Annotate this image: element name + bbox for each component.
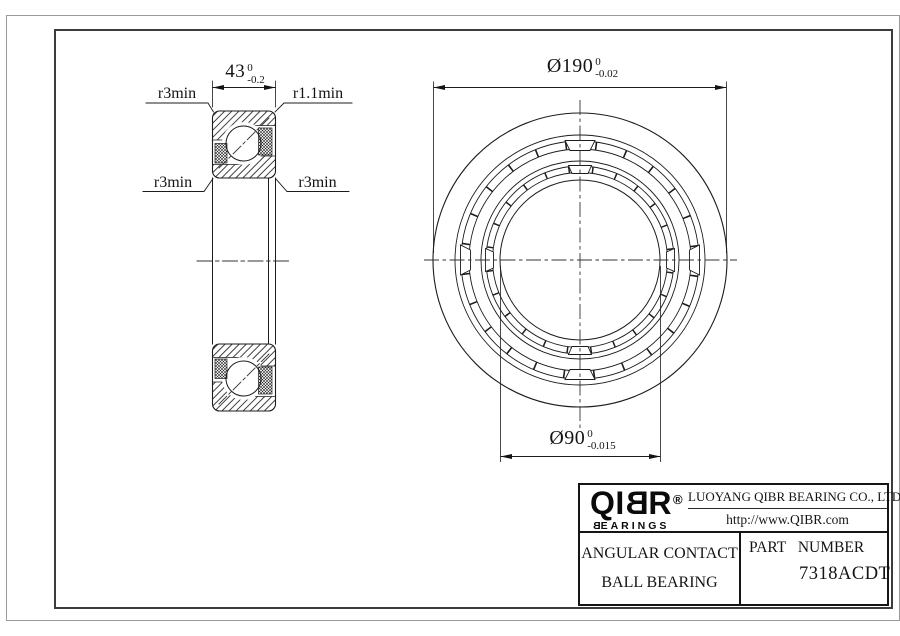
company-website: http://www.QIBR.com (688, 509, 887, 531)
dim-outer-diameter-tolerance: 0-0.02 (595, 55, 618, 81)
dim-outer-diameter-value: Ø190 (547, 55, 593, 78)
qibr-logo: QIBR® BEARINGS (590, 487, 683, 532)
title-block: QIBR® BEARINGS LUOYANG QIBR BEARING CO.,… (578, 483, 889, 606)
company-info: LUOYANG QIBR BEARING CO., LTD http://www… (688, 485, 887, 531)
part-number-value: 7318ACDT (799, 564, 887, 585)
dim-bore-diameter-value: Ø90 (549, 427, 585, 450)
front-view (424, 82, 737, 463)
product-name-cell: ANGULAR CONTACT BALL BEARING (580, 531, 739, 604)
title-block-body-row: ANGULAR CONTACT BALL BEARING PART NUMBER… (580, 531, 887, 604)
dim-outer-diameter: Ø1900-0.02 (520, 55, 645, 81)
logo-wordmark: QIBR® (590, 487, 683, 519)
product-name-line1: ANGULAR CONTACT (580, 539, 739, 568)
dim-width: 430-0.2 (205, 61, 285, 87)
logo-registered-mark: ® (673, 492, 683, 507)
section-view (143, 81, 352, 411)
company-name: LUOYANG QIBR BEARING CO., LTD (688, 485, 887, 509)
callout-r3min-bottom-right: r3min (286, 174, 349, 192)
dim-width-value: 43 (225, 61, 245, 83)
dim-width-tolerance: 0-0.2 (247, 61, 264, 87)
callout-r1.1min-top-right: r1.1min (283, 85, 353, 103)
product-name-line2: BALL BEARING (580, 568, 739, 597)
callout-r3min-top-left: r3min (146, 85, 208, 103)
drawing-page: 430-0.2 Ø1900-0.02 Ø900-0.015 r3min r1.1… (0, 0, 900, 636)
part-number-label: PART NUMBER (749, 539, 887, 557)
title-block-header-row: QIBR® BEARINGS LUOYANG QIBR BEARING CO.,… (580, 485, 887, 533)
callout-r3min-bottom-left: r3min (142, 174, 204, 192)
part-number-cell: PART NUMBER 7318ACDT (739, 531, 887, 604)
dim-bore-diameter: Ø900-0.015 (520, 427, 645, 453)
dim-bore-diameter-tolerance: 0-0.015 (587, 427, 615, 453)
